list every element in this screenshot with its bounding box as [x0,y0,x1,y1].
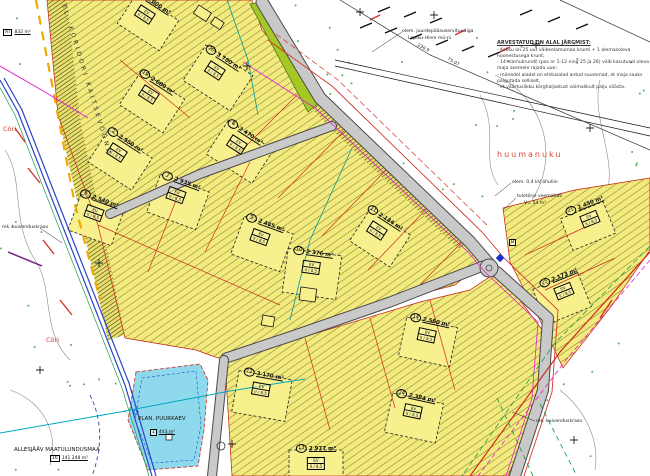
map-text-label: huumanuku [497,151,563,160]
boxed-label: B [509,239,518,246]
parcel-label: 11 2 134 m² EV II / 8,5 [355,203,404,248]
map-text-label: mk. kuivenduskraav [2,225,48,230]
parcel-info-table: EV II / 8,5 [83,204,105,223]
map-text-label: 75,07 [446,58,460,68]
plan-notes: ARVESTATUD ON ALAL JÄRGMIST: - Kokku on … [497,40,649,92]
boxed-label-text: 832 m² [14,30,30,35]
parcel-label: 19 2 680 m² EV II / 8,5 [127,67,176,112]
boxed-label-number: AT [3,29,12,36]
parcel-label: 13 2 977 m² EV II / 8,5 [296,444,336,472]
map-text-label: olem. juurdepääsuservituudiga [402,29,473,34]
notes-lines: - Kokku on 25 uut väikeelamumaa krunti +… [497,48,649,91]
parcel-label: 7 2 935 m² EV II / 8,5 [154,170,201,210]
map-text-label: Cöri [3,126,16,133]
parcel-number: 13 [296,444,307,453]
map-text-label: olem. 0,4 kV õhuliin [512,180,558,185]
map-text-label: V= 54 m³ [524,201,546,206]
parcel-label: 8 2 470 m² EV II / 8,5 [215,117,264,162]
parcel-number: 14 [409,312,422,323]
parcel-area: 2 376 m² [306,249,334,259]
parcel-number: 12 [243,367,255,378]
parcel-number: 9 [245,212,258,224]
parcel-label: 1 3 000 m² EV II / 8,5 [123,0,172,33]
parcel-info-table: EV II / 8,5 [204,60,227,81]
map-text-label: PLAN. PUURKAEV [138,416,186,422]
boxed-label-text: 443 m² [159,430,175,435]
parcel-label: 25 2 173 m² EV II / 8,5 [538,265,586,306]
parcel-info-table: EV II / 8,5 [165,186,187,205]
parcel-info-table: EV II / 8,5 [249,228,271,247]
parcel-number: 21 [564,204,578,216]
parcel-area: 2 173 m² [551,267,579,283]
boxed-label: 16 141 248 m² [50,455,88,462]
boxed-label-number: B [509,239,516,246]
map-text-label: mk. kuivenduskraav [536,419,582,424]
parcel-number: 6 [79,188,92,200]
parcel-number: 10 [293,245,305,255]
map-text-label: ALLESJÄÄV MAATULUNDUSMAA [14,447,100,453]
parcel-info-table: EV II / 8,5 [307,457,326,470]
notes-title: ARVESTATUD ON ALAL JÄRGMIST: [497,40,649,46]
boxed-label-number: 1 [150,429,157,436]
parcel-info-table: EV II / 8,5 [579,210,601,229]
map-text-label: Cöri [46,337,59,344]
note-line: - 14 elamukrundil (pos nr 1-12 ning 25 j… [497,60,649,71]
parcel-info-table: EV II / 8,5 [402,403,423,420]
parcel-area: 2 384 m² [408,392,436,404]
parcel-info-table: EV II / 8,5 [553,282,575,301]
parcel-info-row2: II / 8,5 [302,266,319,274]
parcel-number: 24 [395,388,408,399]
map-text-label: EL. KORIDORI KAITSEVÖÖND [60,4,112,157]
parcel-area: 2 450 m² [577,195,605,211]
parcel-label: 12 3 170 m² EV II / 8,5 [240,367,285,402]
boxed-label-number: 16 [50,455,60,462]
parcel-area: 3 170 m² [256,370,284,381]
map-text-label: 230,9 [416,44,430,54]
map-text-label: tuletõrje veemahuti [517,194,562,199]
parcel-info-table: EV II / 8,5 [226,134,249,155]
parcel-label: 20 3 700 m² EV II / 8,5 [193,43,242,88]
parcel-label: 21 2 450 m² EV II / 8,5 [564,193,612,234]
parcel-number: 25 [538,276,552,288]
map-text-label: Lepiku-Hinni mü-ni [408,36,451,41]
parcel-number: 7 [161,170,174,182]
detail-plan-map: 1 3 000 m² EV II / 8,5 20 3 700 m² EV II… [0,0,650,476]
parcel-info-table: EV II / 8,5 [301,260,321,275]
parcel-info-table: EV II / 8,5 [416,327,437,344]
boxed-label-text: 141 248 m² [62,456,88,461]
parcel-info-row2: II / 8,5 [308,463,325,469]
parcel-info-table: EV II / 8,5 [251,381,272,397]
parcel-area: 2 560 m² [422,316,450,328]
note-line: - mõnedel aladel on ehitusalad antud suu… [497,73,649,84]
note-line: - et väärtuslikku kõrghaljastust võimali… [497,85,649,91]
parcel-info-table: EV II / 8,5 [134,4,157,25]
parcel-label: 9 2 485 m² EV II / 8,5 [238,212,285,252]
parcel-label: 14 2 560 m² EV II / 8,5 [405,312,450,348]
boxed-label: 1 443 m² [150,429,175,436]
parcel-info-table: EV II / 8,5 [138,84,161,105]
parcel-label: 24 2 384 m² EV II / 8,5 [391,388,436,424]
boxed-label: AT 832 m² [3,29,31,36]
parcel-info-table: EV II / 8,5 [366,220,389,241]
parcel-label: 10 2 376 m² EV II / 8,5 [290,245,334,278]
parcel-label: 6 2 540 m² EV II / 8,5 [72,188,119,228]
parcel-area: 2 977 m² [309,446,336,452]
note-line: - Kokku on 25 uut väikeelamumaa krunti +… [497,48,649,59]
